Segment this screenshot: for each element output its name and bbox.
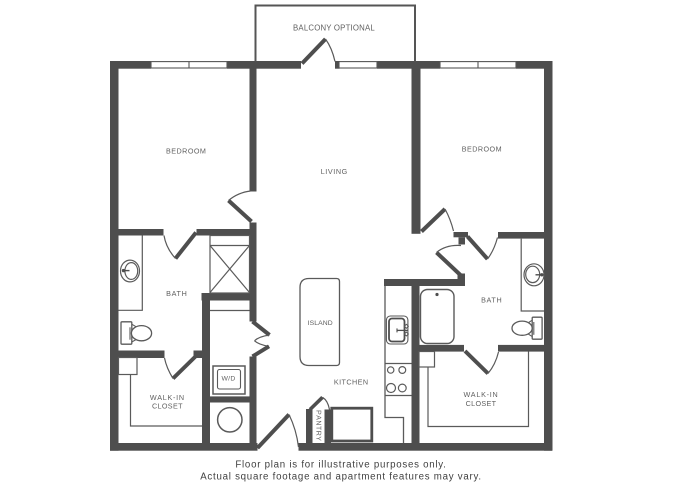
svg-text:BEDROOM: BEDROOM bbox=[462, 145, 502, 154]
svg-text:Actual square footage and apar: Actual square footage and apartment feat… bbox=[200, 472, 482, 483]
svg-text:W/D: W/D bbox=[221, 376, 235, 383]
svg-text:BATH: BATH bbox=[481, 295, 502, 304]
svg-text:BALCONY OPTIONAL: BALCONY OPTIONAL bbox=[293, 23, 375, 32]
svg-text:LIVING: LIVING bbox=[321, 167, 348, 176]
svg-text:Floor plan is for illustrative: Floor plan is for illustrative purposes … bbox=[235, 459, 446, 470]
svg-text:BEDROOM: BEDROOM bbox=[166, 147, 206, 156]
svg-text:CLOSET: CLOSET bbox=[466, 399, 497, 408]
svg-text:CLOSET: CLOSET bbox=[152, 402, 183, 411]
svg-text:WALK-IN: WALK-IN bbox=[464, 390, 499, 399]
svg-text:WALK-IN: WALK-IN bbox=[150, 393, 185, 402]
svg-text:BATH: BATH bbox=[166, 289, 187, 298]
svg-text:ISLAND: ISLAND bbox=[308, 320, 333, 327]
svg-text:KITCHEN: KITCHEN bbox=[334, 378, 369, 387]
